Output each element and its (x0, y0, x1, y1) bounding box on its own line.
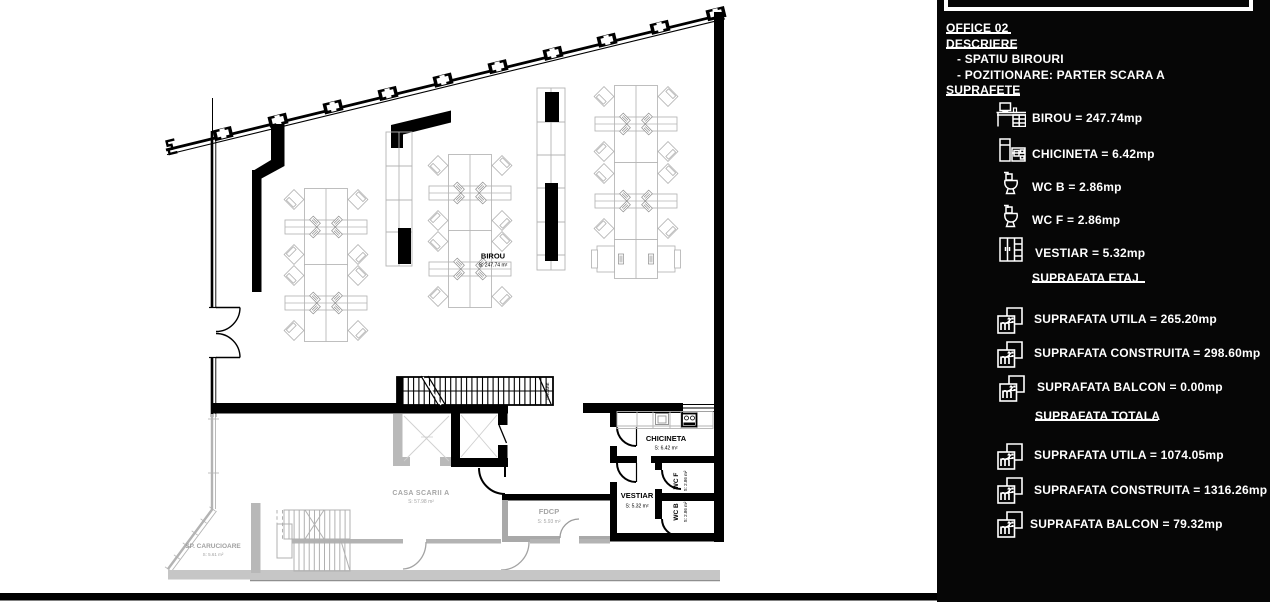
svg-text:S: 2.86 m²: S: 2.86 m² (683, 470, 688, 491)
svg-text:WC F: WC F (673, 473, 680, 490)
svg-text:CASA SCARII A: CASA SCARII A (392, 490, 449, 497)
svg-text:BIROU: BIROU (481, 252, 505, 261)
svg-text:SP. CARUCIOARE: SP. CARUCIOARE (185, 543, 241, 550)
svg-text:S: 5.93 m²: S: 5.93 m² (537, 519, 560, 525)
svg-text:WC B: WC B (673, 503, 680, 521)
svg-text:S: 5.32 m²: S: 5.32 m² (625, 504, 648, 510)
svg-text:S: 57.98 m²: S: 57.98 m² (408, 499, 434, 505)
svg-text:S: 2.86 m²: S: 2.86 m² (683, 501, 688, 522)
svg-text:CHICINETA: CHICINETA (646, 434, 687, 443)
svg-text:URCARE: URCARE (545, 382, 550, 399)
svg-text:S: 247.74 m²: S: 247.74 m² (479, 263, 508, 269)
svg-text:S: 5.61 m²: S: 5.61 m² (203, 552, 224, 557)
svg-text:VESTIAR: VESTIAR (621, 491, 654, 500)
svg-text:FDCP: FDCP (539, 507, 559, 516)
svg-text:S: 6.42 m²: S: 6.42 m² (654, 446, 677, 452)
